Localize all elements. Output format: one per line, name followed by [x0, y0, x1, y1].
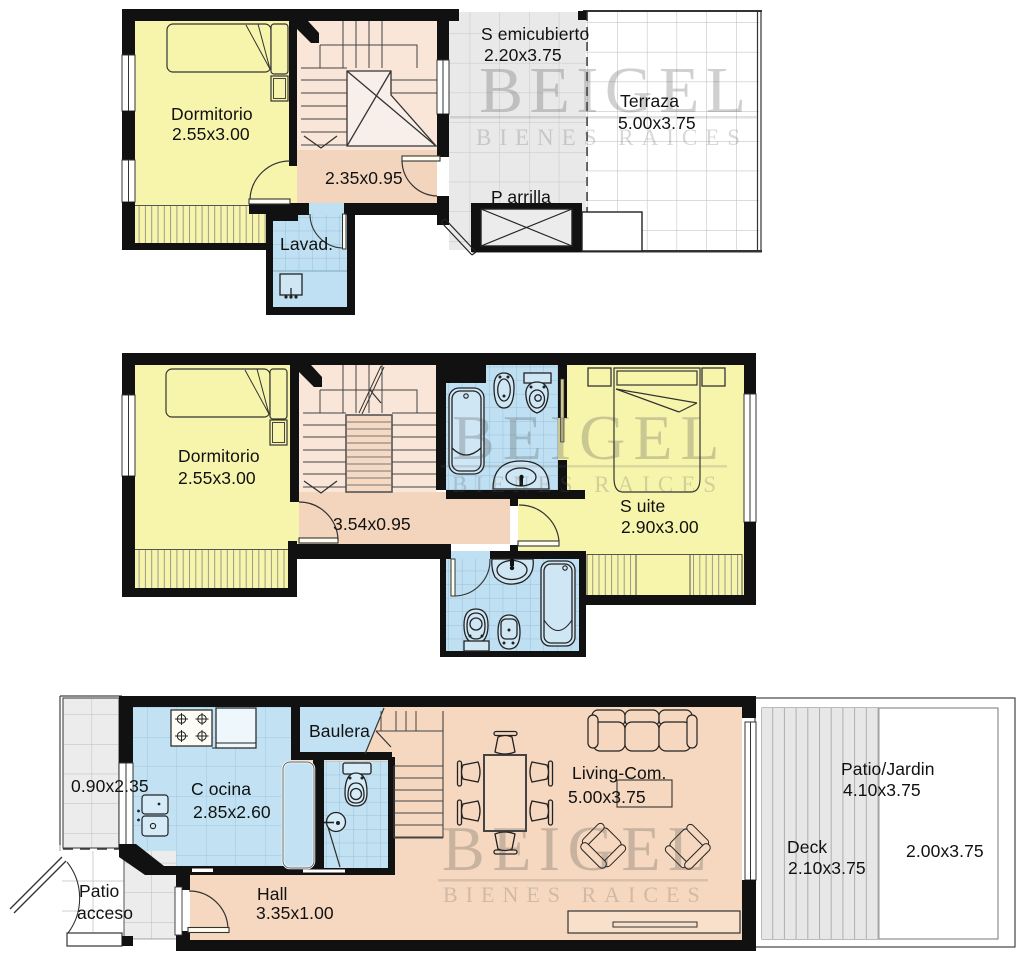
svg-text:Patio: Patio	[79, 881, 119, 901]
svg-text:BIENES RAICES: BIENES RAICES	[452, 472, 724, 497]
svg-text:Deck: Deck	[787, 837, 827, 857]
svg-text:2.55x3.00: 2.55x3.00	[172, 124, 250, 144]
svg-text:Patio/Jardin: Patio/Jardin	[841, 759, 935, 779]
svg-text:4.10x3.75: 4.10x3.75	[843, 780, 921, 800]
svg-text:Dormitorio: Dormitorio	[171, 104, 253, 124]
svg-text:0.90x2.35: 0.90x2.35	[71, 776, 149, 796]
svg-text:2.00x3.75: 2.00x3.75	[906, 841, 984, 861]
svg-text:5.00x3.75: 5.00x3.75	[618, 113, 696, 133]
svg-text:2.10x3.75: 2.10x3.75	[788, 858, 866, 878]
svg-text:C ocina: C ocina	[191, 779, 251, 799]
svg-text:acceso: acceso	[77, 903, 133, 923]
svg-text:Terraza: Terraza	[620, 91, 679, 111]
svg-text:BEIGEL: BEIGEL	[442, 813, 715, 884]
svg-text:5.00x3.75: 5.00x3.75	[568, 787, 646, 807]
svg-text:BEIGEL: BEIGEL	[452, 402, 728, 473]
svg-text:2.35x0.95: 2.35x0.95	[325, 168, 403, 188]
svg-text:P arrilla: P arrilla	[491, 187, 551, 207]
svg-text:Dormitorio: Dormitorio	[178, 446, 260, 466]
svg-text:Lavad.: Lavad.	[280, 234, 333, 254]
svg-text:S emicubierto: S emicubierto	[481, 24, 589, 44]
svg-text:2.90x3.00: 2.90x3.00	[621, 517, 699, 537]
svg-text:3.54x0.95: 3.54x0.95	[333, 514, 411, 534]
svg-text:BIENES RAICES: BIENES RAICES	[443, 882, 708, 907]
svg-text:2.55x3.00: 2.55x3.00	[178, 468, 256, 488]
svg-text:2.20x3.75: 2.20x3.75	[484, 45, 562, 65]
svg-text:2.85x2.60: 2.85x2.60	[193, 802, 271, 822]
svg-text:Hall: Hall	[257, 884, 288, 904]
svg-text:BIENES RAICES: BIENES RAICES	[476, 125, 748, 150]
svg-text:Living-Com.: Living-Com.	[572, 763, 666, 783]
svg-text:3.35x1.00: 3.35x1.00	[256, 903, 334, 923]
svg-text:S uite: S uite	[620, 496, 665, 516]
svg-text:Baulera: Baulera	[309, 721, 370, 741]
